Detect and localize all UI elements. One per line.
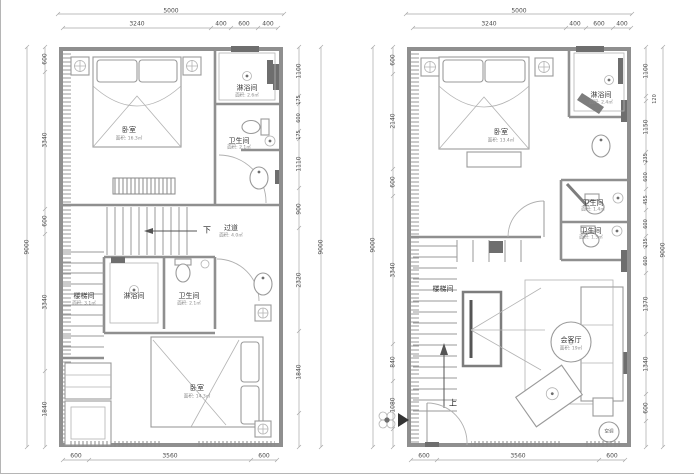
side-table-icon — [593, 398, 613, 416]
plant-icon — [379, 412, 409, 428]
svg-text:1840: 1840 — [42, 401, 49, 416]
svg-text:600: 600 — [42, 53, 49, 65]
stair-railing — [463, 288, 545, 370]
ceiling-fan-icon — [255, 305, 271, 321]
room-label: 卫生间 — [581, 226, 602, 235]
svg-text:600: 600 — [296, 113, 302, 123]
svg-text:1100: 1100 — [296, 63, 303, 78]
radiator-icon — [113, 178, 175, 194]
bed-icon — [93, 57, 181, 147]
room-label: 淋浴间 — [124, 291, 145, 300]
lintel — [231, 46, 259, 52]
room-label: 卧室 — [190, 383, 204, 392]
svg-text:3240: 3240 — [481, 21, 496, 28]
door-arc — [217, 259, 259, 301]
room-area: 面积: 2.1㎡ — [227, 144, 251, 151]
svg-text:235: 235 — [643, 238, 649, 248]
stair-treads — [413, 240, 521, 411]
svg-text:1110: 1110 — [296, 156, 303, 171]
floor-plan-drawing: 下 过道 面积: 4.0㎡ — [1, 0, 694, 473]
sill-hatch — [585, 441, 621, 447]
svg-text:1150: 1150 — [643, 119, 650, 134]
room-label: 会客厅 — [561, 335, 582, 344]
svg-text:600: 600 — [238, 21, 250, 28]
door-arc — [508, 201, 544, 237]
svg-text:3340: 3340 — [42, 132, 49, 147]
svg-text:5000: 5000 — [511, 8, 526, 15]
washbasin-icon — [592, 135, 610, 157]
svg-text:600: 600 — [258, 453, 270, 460]
svg-text:9000: 9000 — [660, 242, 667, 257]
wall-niche — [273, 64, 279, 90]
svg-text:空调: 空调 — [605, 428, 614, 435]
svg-text:900: 900 — [296, 203, 303, 215]
room-label: 楼梯间 — [74, 291, 95, 300]
left-plan: 下 过道 面积: 4.0㎡ — [24, 8, 325, 463]
svg-text:9000: 9000 — [370, 237, 377, 252]
room-area: 面积: 1.4㎡ — [581, 206, 605, 213]
svg-text:600: 600 — [390, 54, 397, 66]
sill-hatch — [69, 441, 161, 447]
svg-text:9000: 9000 — [24, 239, 31, 254]
room-area: 面积: 2.4㎡ — [589, 99, 613, 106]
direction-arrow-up — [440, 343, 448, 408]
svg-text:3340: 3340 — [42, 294, 49, 309]
svg-text:175: 175 — [296, 95, 302, 105]
svg-text:120: 120 — [652, 94, 658, 104]
washbasin-icon — [254, 273, 272, 295]
stair-landing-block — [489, 241, 503, 253]
svg-text:400: 400 — [569, 21, 581, 28]
wall-niche — [621, 250, 627, 272]
wall-hatch-band — [411, 51, 419, 443]
svg-text:1100: 1100 — [643, 63, 650, 78]
svg-text:1080: 1080 — [390, 397, 397, 412]
svg-text:1840: 1840 — [296, 364, 303, 379]
ceiling-fan-icon — [421, 58, 439, 76]
svg-text:600: 600 — [42, 215, 49, 227]
svg-text:400: 400 — [215, 21, 227, 28]
svg-text:2140: 2140 — [390, 113, 397, 128]
svg-text:600: 600 — [643, 172, 649, 182]
toilet-icon — [175, 259, 209, 282]
svg-text:600: 600 — [606, 453, 618, 460]
svg-text:600: 600 — [390, 176, 397, 188]
svg-text:5000: 5000 — [163, 8, 178, 15]
ac-unit-icon: 空调 — [599, 422, 619, 442]
svg-text:600: 600 — [593, 21, 605, 28]
room-area: 面积: 19㎡ — [560, 345, 583, 352]
svg-text:3340: 3340 — [390, 262, 397, 277]
svg-text:600: 600 — [643, 402, 650, 414]
bed-icon — [439, 57, 529, 149]
room-label: 卧室 — [122, 125, 136, 134]
svg-text:600: 600 — [643, 256, 649, 266]
entry-door-arc — [425, 403, 467, 447]
svg-text:840: 840 — [390, 356, 397, 368]
washbasin-icon — [250, 167, 279, 189]
bed-icon — [151, 337, 263, 427]
room-label: 淋浴间 — [237, 83, 258, 92]
room-area: 面积: 13.4㎡ — [488, 137, 515, 144]
svg-text:1370: 1370 — [643, 296, 650, 311]
svg-text:9000: 9000 — [318, 239, 325, 254]
svg-text:400: 400 — [616, 21, 628, 28]
floor-plan-canvas: 下 过道 面积: 4.0㎡ — [0, 0, 694, 474]
up-label: 上 — [449, 399, 457, 408]
ceiling-fan-icon — [183, 57, 201, 75]
room-area: 面积: 1.5㎡ — [579, 234, 603, 241]
room-label: 卫生间 — [179, 291, 200, 300]
room-label: 过道 — [224, 223, 238, 232]
svg-text:3560: 3560 — [162, 453, 177, 460]
svg-text:3240: 3240 — [129, 21, 144, 28]
svg-text:1340: 1340 — [643, 356, 650, 371]
svg-text:400: 400 — [262, 21, 274, 28]
room-area: 面积: 3.1㎡ — [72, 300, 96, 307]
room-label: 楼梯间 — [433, 284, 454, 293]
ceiling-fan-icon — [535, 58, 553, 76]
svg-text:2320: 2320 — [296, 272, 303, 287]
dresser-icon — [467, 152, 521, 167]
svg-text:600: 600 — [418, 453, 430, 460]
sill-hatch — [197, 441, 275, 447]
svg-text:235: 235 — [643, 153, 649, 163]
room-area: 面积: 4.0㎡ — [219, 232, 243, 239]
svg-text:455: 455 — [643, 195, 649, 205]
svg-text:600: 600 — [70, 453, 82, 460]
wardrobe-icon — [65, 363, 111, 445]
shower-icon — [110, 257, 158, 323]
room-label: 卫生间 — [229, 136, 250, 145]
room-area: 面积: 16.3㎡ — [116, 135, 143, 142]
lintel — [576, 46, 604, 52]
room-area: 面积: 2.6㎡ — [235, 92, 259, 99]
room-label: 卫生间 — [583, 198, 604, 207]
room-label: 卧室 — [494, 127, 508, 136]
ceiling-fan-icon — [255, 421, 271, 437]
ceiling-fan-icon — [71, 57, 89, 75]
down-label: 下 — [203, 226, 211, 235]
room-area: 面积: 14.3㎡ — [184, 393, 211, 400]
svg-text:175: 175 — [296, 130, 302, 140]
svg-text:3560: 3560 — [510, 453, 525, 460]
room-area: 面积: 2.1㎡ — [177, 300, 201, 307]
sill-hatch — [471, 441, 561, 447]
right-plan: 上 空调 — [370, 8, 667, 463]
svg-text:600: 600 — [643, 219, 649, 229]
room-label: 淋浴间 — [591, 90, 612, 99]
desk-icon — [516, 365, 583, 427]
